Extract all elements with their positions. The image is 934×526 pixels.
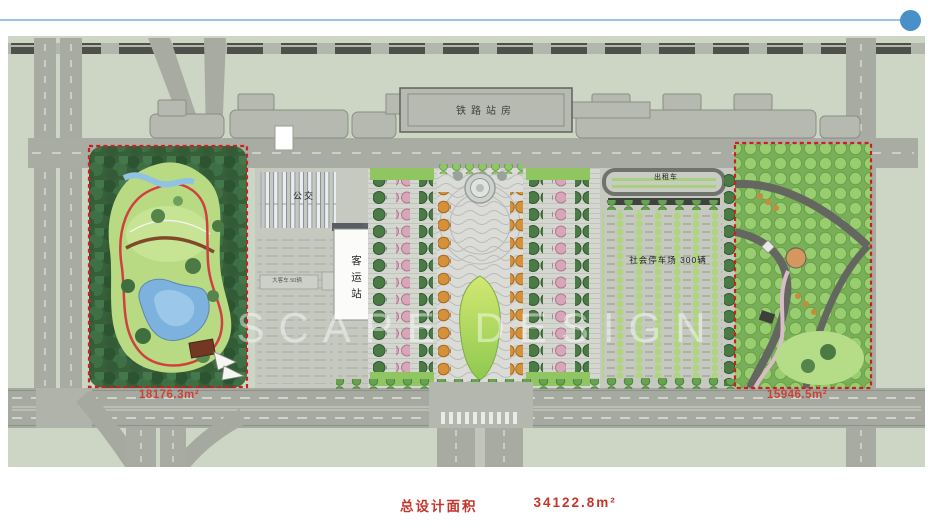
bus-label: 公交 (284, 189, 324, 202)
parking-block (600, 168, 738, 388)
railway-tracks (8, 43, 925, 54)
social-parking-lot (602, 210, 722, 378)
terminal-floor-label: 2F (363, 223, 369, 229)
site-plan: SCAPE DESIGN 铁路站房 公交 客运站 2F 大客车 50辆 出租车 … (8, 36, 925, 467)
total-area-label: 总设计面积 (400, 495, 478, 515)
street-trees (336, 379, 738, 389)
terminal-label: 客运站 (348, 236, 364, 324)
station-label: 铁路站房 (406, 102, 566, 117)
garden-plaza (786, 248, 806, 268)
south-avenue (429, 382, 533, 467)
west-park (89, 146, 247, 388)
total-area-value: 34122.8m² (534, 495, 617, 515)
taxi-label: 出租车 (638, 172, 694, 182)
east-area-label: 15946.5m² (741, 389, 853, 401)
site-plan-drawing: SCAPE DESIGN (8, 36, 925, 467)
total-area-caption: 总设计面积 34122.8m² (400, 495, 617, 515)
east-park (735, 144, 871, 388)
header-accent-dot (900, 10, 921, 31)
east-park-lawn (776, 331, 864, 385)
social-parking-label: 社会停车场 300辆 (600, 254, 736, 266)
watermark: SCAPE DESIGN (236, 304, 719, 351)
coach-parking-label: 大客车 50辆 (256, 276, 318, 284)
west-area-label: 18176.3m² (113, 389, 225, 401)
header-accent-line (0, 19, 902, 21)
